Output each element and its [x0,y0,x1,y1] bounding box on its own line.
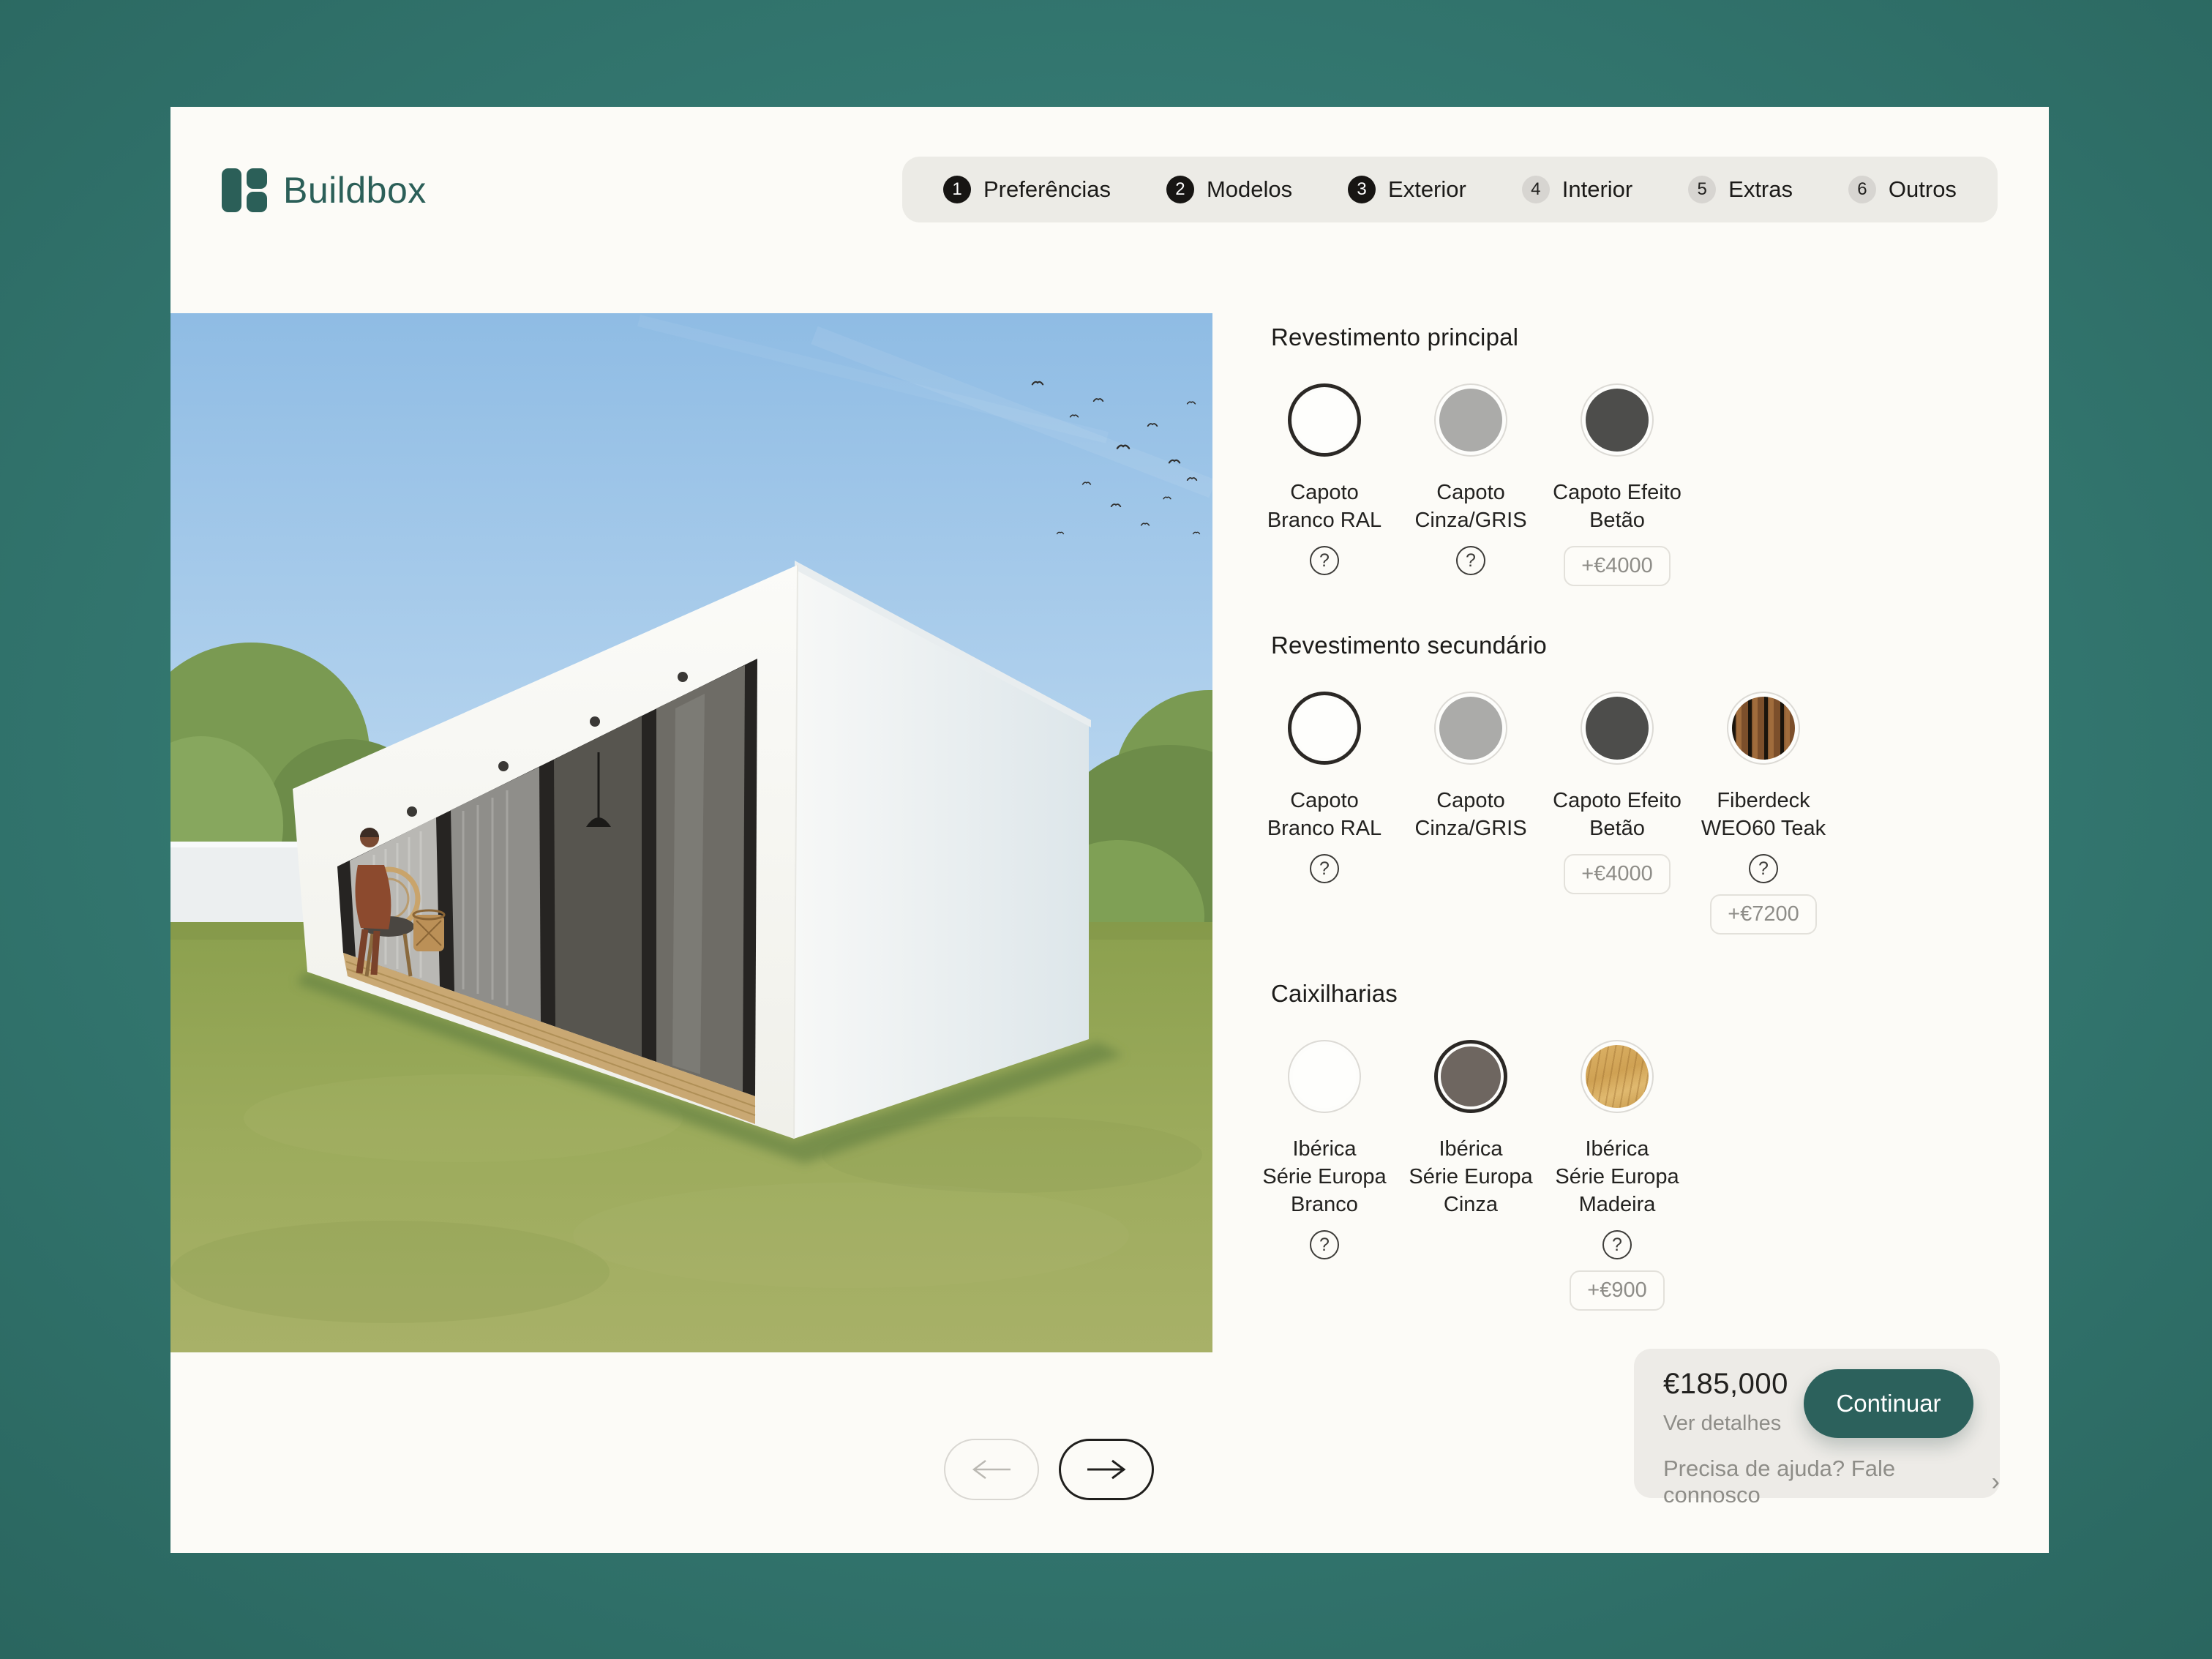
material-label: Capoto EfeitoBetão [1553,787,1682,842]
price-badge: +€4000 [1564,854,1671,894]
section-title: Revestimento principal [1271,323,2032,351]
step-number-badge: 6 [1848,176,1876,203]
chevron-right-icon: › [1992,1469,2000,1494]
step-label: Modelos [1207,176,1292,203]
material-extras: ? +€7200 [1710,854,1817,935]
material-swatch[interactable] [1727,692,1800,765]
price-badge: +€4000 [1564,546,1671,586]
step-label: Interior [1562,176,1632,203]
step-item[interactable]: 5 Extras [1688,176,1793,203]
step-item[interactable]: 1 Preferências [943,176,1111,203]
material-option: CapotoBranco RAL ? [1251,692,1398,883]
options-section: Revestimento principal CapotoBranco RAL … [1271,323,2032,586]
material-label: IbéricaSérie EuropaMadeira [1555,1135,1679,1218]
step-number-badge: 4 [1522,176,1550,203]
contact-help-link[interactable]: Precisa de ajuda? Fale connosco › [1663,1456,2000,1508]
material-swatch[interactable] [1434,692,1507,765]
step-item[interactable]: 4 Interior [1522,176,1632,203]
options-row: CapotoBranco RAL ? CapotoCinza/GRIS ? Ca… [1251,383,2032,586]
options-row: CapotoBranco RAL ? CapotoCinza/GRIS Capo… [1251,692,2032,935]
material-extras: ? +€900 [1570,1230,1664,1311]
material-option: CapotoCinza/GRIS ? [1398,383,1544,575]
house-render-viewport [170,313,1212,1352]
options-section: Revestimento secundário CapotoBranco RAL… [1271,632,2032,935]
material-option: IbéricaSérie EuropaBranco ? [1251,1040,1398,1259]
material-label: CapotoCinza/GRIS [1414,787,1526,842]
material-swatch[interactable] [1581,1040,1654,1113]
material-label: CapotoBranco RAL [1267,787,1381,842]
help-icon[interactable]: ? [1310,546,1339,575]
view-details-link[interactable]: Ver detalhes [1663,1412,1781,1436]
material-extras: ? [1310,1230,1339,1259]
help-icon[interactable]: ? [1310,1230,1339,1259]
step-number-badge: 2 [1166,176,1194,203]
material-extras: +€4000 [1564,854,1671,894]
material-extras: ? [1456,546,1485,575]
step-item[interactable]: 2 Modelos [1166,176,1292,203]
options-row: IbéricaSérie EuropaBranco ? IbéricaSérie… [1251,1040,2032,1311]
material-extras: +€4000 [1564,546,1671,586]
material-swatch[interactable] [1434,1040,1507,1113]
price-badge: +€7200 [1710,894,1817,935]
material-label: Capoto EfeitoBetão [1553,479,1682,534]
brand-name: Buildbox [283,169,427,211]
material-option: IbéricaSérie EuropaCinza [1398,1040,1544,1230]
page-background: Buildbox 1 Preferências 2 Modelos 3 Exte… [0,0,2212,1659]
material-option: Capoto EfeitoBetão +€4000 [1544,692,1690,894]
step-label: Outros [1889,176,1957,203]
step-number-badge: 3 [1348,176,1376,203]
section-title: Caixilharias [1271,980,2032,1008]
help-icon[interactable]: ? [1456,546,1485,575]
step-number-badge: 5 [1688,176,1716,203]
next-step-button[interactable] [1059,1439,1154,1500]
house-render-image [170,313,1212,1352]
material-extras: ? [1310,854,1339,883]
step-item[interactable]: 3 Exterior [1348,176,1466,203]
step-item[interactable]: 6 Outros [1848,176,1957,203]
total-price: €185,000 [1663,1368,1788,1401]
material-option: CapotoBranco RAL ? [1251,383,1398,575]
options-section: Caixilharias IbéricaSérie EuropaBranco ?… [1271,980,2032,1311]
material-swatch[interactable] [1288,383,1361,457]
material-swatch[interactable] [1288,692,1361,765]
configurator-window: Buildbox 1 Preferências 2 Modelos 3 Exte… [170,107,2049,1553]
step-label: Exterior [1388,176,1466,203]
step-label: Preferências [983,176,1111,203]
material-option: IbéricaSérie EuropaMadeira ? +€900 [1544,1040,1690,1311]
section-title: Revestimento secundário [1271,632,2032,659]
price-summary-card: €185,000 Ver detalhes Continuar Precisa … [1634,1349,2000,1498]
arrow-left-icon [968,1458,1015,1481]
arrow-right-icon [1083,1458,1130,1481]
material-option: FiberdeckWEO60 Teak ? +€7200 [1690,692,1837,935]
buildbox-logo-icon [222,168,267,212]
material-label: IbéricaSérie EuropaCinza [1409,1135,1532,1218]
options-panel: Revestimento principal CapotoBranco RAL … [1271,323,2032,1356]
step-number-badge: 1 [943,176,971,203]
material-label: CapotoBranco RAL [1267,479,1381,534]
material-label: CapotoCinza/GRIS [1414,479,1526,534]
material-swatch[interactable] [1581,383,1654,457]
help-icon[interactable]: ? [1310,854,1339,883]
material-swatch[interactable] [1581,692,1654,765]
previous-step-button[interactable] [944,1439,1039,1500]
steps-bar: 1 Preferências 2 Modelos 3 Exterior 4 In… [902,157,1998,222]
material-label: IbéricaSérie EuropaBranco [1262,1135,1386,1218]
help-icon[interactable]: ? [1749,854,1778,883]
price-badge: +€900 [1570,1270,1664,1311]
material-option: Capoto EfeitoBetão +€4000 [1544,383,1690,586]
material-swatch[interactable] [1288,1040,1361,1113]
material-option: CapotoCinza/GRIS [1398,692,1544,854]
step-label: Extras [1728,176,1793,203]
contact-help-text: Precisa de ajuda? Fale connosco [1663,1456,1982,1508]
material-label: FiberdeckWEO60 Teak [1701,787,1826,842]
brand-logo: Buildbox [222,168,427,212]
material-extras: ? [1310,546,1339,575]
help-icon[interactable]: ? [1602,1230,1632,1259]
continue-button[interactable]: Continuar [1804,1369,1973,1438]
material-swatch[interactable] [1434,383,1507,457]
